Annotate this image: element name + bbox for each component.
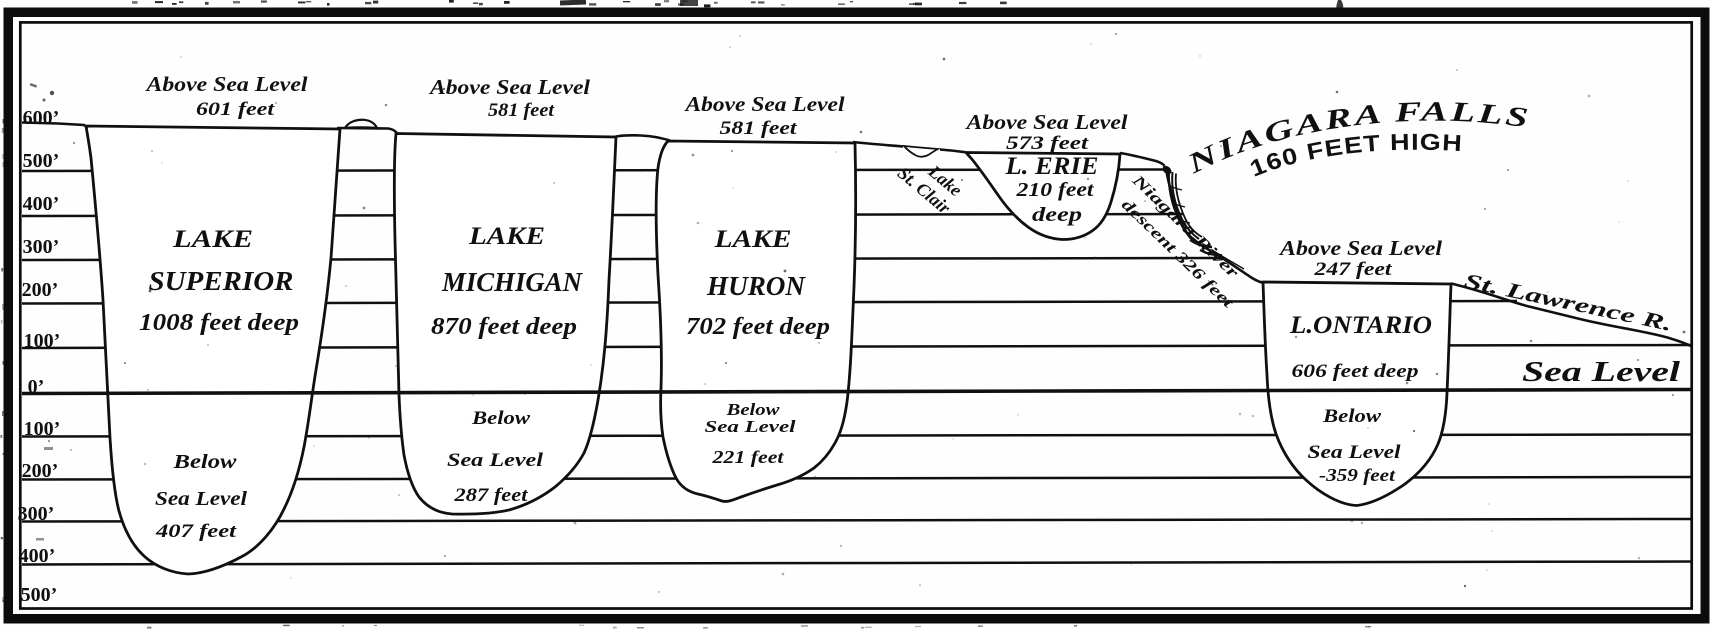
svg-text:L.ONTARIO: L.ONTARIO [1289,312,1432,339]
svg-text:100’: 100’ [24,330,61,352]
svg-text:573 feet: 573 feet [1006,133,1089,154]
svg-text:Below: Below [1322,406,1382,427]
svg-text:LAKE: LAKE [713,226,791,253]
svg-text:Below: Below [471,408,531,429]
svg-text:Above Sea Level: Above Sea Level [683,92,844,116]
svg-text:L. ERIE: L. ERIE [1004,153,1098,180]
svg-text:870 feet deep: 870 feet deep [431,314,577,340]
svg-text:581 feet: 581 feet [720,118,798,139]
svg-text:Sea Level: Sea Level [705,417,796,436]
svg-text:300’: 300’ [23,236,60,258]
svg-text:400’: 400’ [19,545,56,567]
svg-text:1008 feet deep: 1008 feet deep [139,310,299,336]
svg-text:200’: 200’ [22,460,59,482]
svg-text:-359 feet: -359 feet [1319,465,1396,485]
svg-text:deep: deep [1032,204,1082,226]
svg-text:0’: 0’ [28,376,45,398]
svg-text:581 feet: 581 feet [488,100,555,121]
svg-text:SUPERIOR: SUPERIOR [149,266,294,296]
svg-text:Sea Level: Sea Level [447,450,544,471]
svg-text:100’: 100’ [24,418,61,440]
svg-text:300’: 300’ [18,503,55,525]
svg-text:Below: Below [172,451,237,473]
svg-text:247 feet: 247 feet [1313,259,1392,280]
svg-text:LAKE: LAKE [468,223,545,250]
svg-text:407 feet: 407 feet [155,521,237,542]
svg-text:500’: 500’ [23,150,60,172]
svg-text:HURON: HURON [706,271,807,301]
svg-text:287 feet: 287 feet [453,485,528,506]
svg-text:Sea Level: Sea Level [155,488,248,510]
svg-text:200’: 200’ [22,279,59,301]
svg-text:606 feet deep: 606 feet deep [1292,361,1419,382]
svg-text:Sea Level: Sea Level [1522,357,1680,388]
svg-text:600’: 600’ [23,107,60,129]
svg-text:Above Sea Level: Above Sea Level [964,110,1127,134]
svg-text:MICHIGAN: MICHIGAN [441,267,583,297]
svg-text:221 feet: 221 feet [711,447,784,467]
svg-text:Above Sea Level: Above Sea Level [144,72,307,96]
svg-text:702 feet deep: 702 feet deep [686,314,830,340]
svg-text:LAKE: LAKE [172,226,253,253]
svg-text:Sea Level: Sea Level [1308,442,1402,463]
svg-text:Above Sea Level: Above Sea Level [428,75,590,99]
svg-text:400’: 400’ [23,193,60,215]
svg-text:601 feet: 601 feet [196,99,275,120]
svg-text:500’: 500’ [21,584,58,606]
svg-text:210 feet: 210 feet [1015,179,1095,201]
svg-text:Above Sea Level: Above Sea Level [1278,236,1442,260]
